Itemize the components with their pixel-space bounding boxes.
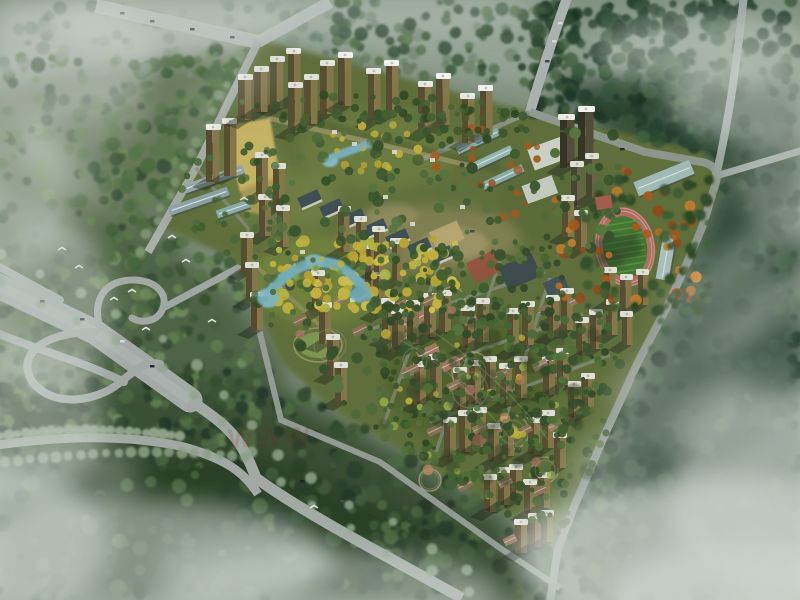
svg-text:WWW.: WWW. [227, 421, 322, 454]
